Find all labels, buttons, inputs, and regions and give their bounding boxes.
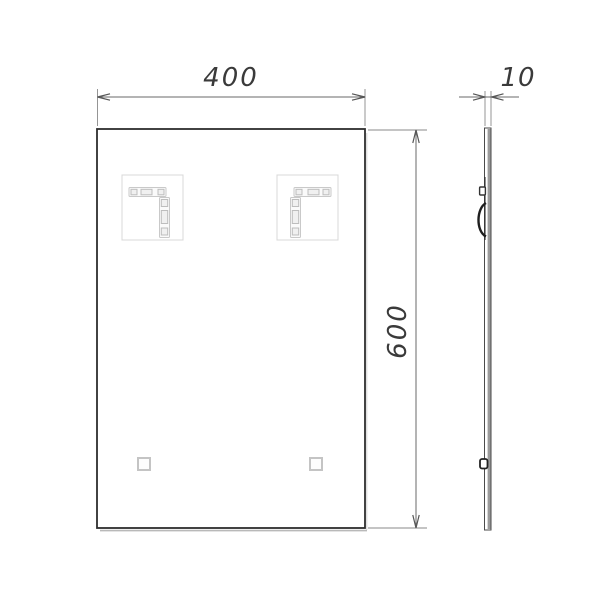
thickness-dimension-label: 10 (500, 63, 535, 93)
side-bottom-clip (480, 459, 488, 469)
height-dimension: 600 (368, 130, 427, 528)
bracket-cap (131, 189, 137, 195)
bracket-slot (161, 211, 167, 224)
bracket-cap (161, 200, 167, 207)
bracket-slot (308, 189, 319, 195)
mount-plate-right (277, 175, 338, 240)
width-dimension: 400 (98, 63, 366, 126)
bottom-bumper-right (310, 458, 322, 470)
side-profile-shading (488, 129, 491, 529)
thickness-dimension: 10 (459, 63, 536, 126)
front-view (97, 129, 367, 531)
bracket-cap (158, 189, 164, 195)
mount-plate-left-outline (122, 175, 183, 240)
width-dimension-label: 400 (203, 63, 259, 93)
bottom-bumper-left (138, 458, 150, 470)
bracket-slot (292, 211, 298, 224)
bracket-cap (323, 189, 329, 195)
bracket-cap (296, 189, 302, 195)
mount-plate-left-vertical-bracket (160, 198, 170, 238)
drawing-canvas: 400 600 (0, 0, 600, 600)
bracket-cap (292, 200, 298, 207)
mount-plate-right-horizontal-bracket (294, 188, 331, 197)
side-view (478, 128, 491, 530)
height-dimension-label: 600 (383, 303, 413, 359)
mirror-technical-drawing: 400 600 (0, 0, 600, 600)
mount-plate-left (122, 175, 183, 240)
side-bracket-notch (480, 187, 486, 195)
mount-plate-right-outline (277, 175, 338, 240)
bracket-cap (161, 228, 167, 235)
mount-plate-right-vertical-bracket (291, 198, 301, 238)
bracket-cap (292, 228, 298, 235)
mount-plate-left-horizontal-bracket (129, 188, 166, 197)
bracket-slot (141, 189, 152, 195)
